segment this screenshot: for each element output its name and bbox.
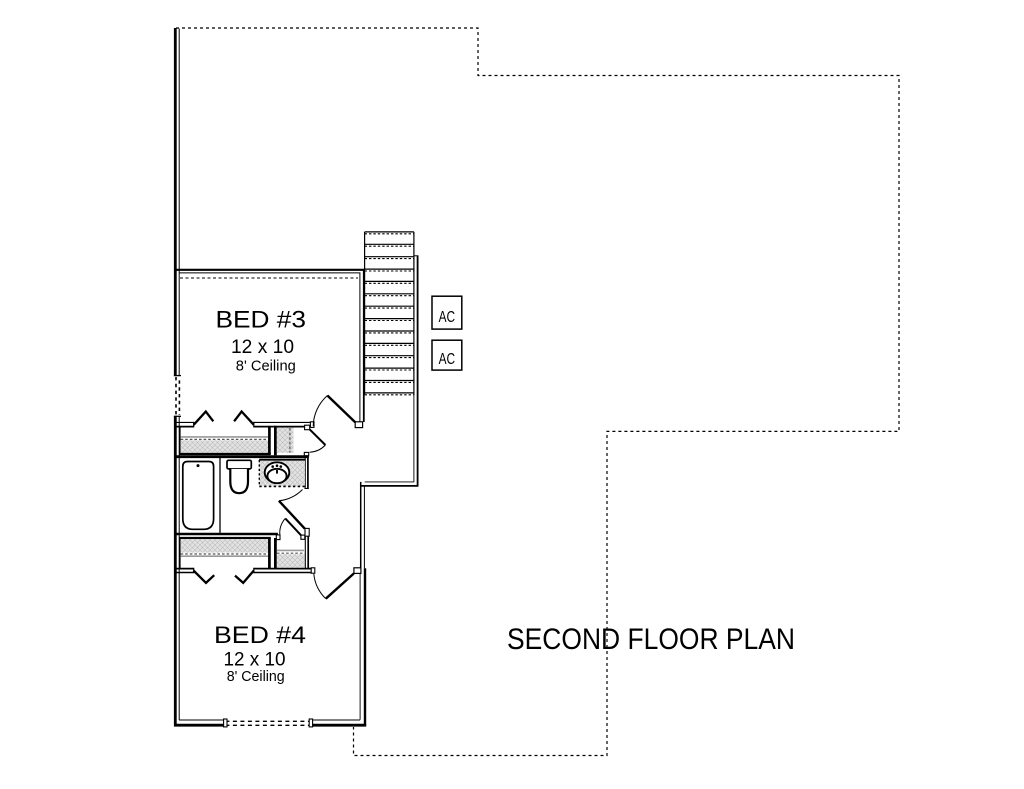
svg-text:12 x 10: 12 x 10	[231, 337, 294, 358]
svg-text:8' Ceiling: 8' Ceiling	[227, 668, 285, 685]
svg-text:8' Ceiling: 8' Ceiling	[236, 357, 296, 374]
svg-text:BED #4: BED #4	[214, 622, 306, 649]
svg-text:SECOND FLOOR PLAN: SECOND FLOOR PLAN	[507, 623, 795, 656]
svg-text:BED #3: BED #3	[216, 306, 307, 333]
svg-text:AC: AC	[439, 351, 456, 368]
svg-text:AC: AC	[439, 309, 456, 326]
